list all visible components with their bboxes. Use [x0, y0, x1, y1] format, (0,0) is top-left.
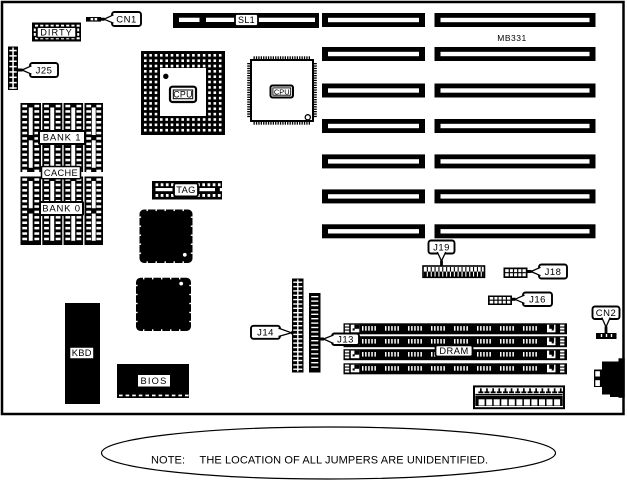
svg-text:NOTE:: NOTE:	[151, 454, 185, 466]
svg-text:KBD: KBD	[72, 348, 92, 358]
svg-text:BIOS: BIOS	[140, 376, 167, 386]
svg-text:J25: J25	[36, 65, 53, 76]
svg-text:DRAM: DRAM	[439, 346, 468, 356]
svg-text:THE LOCATION OF ALL JUMPERS AR: THE LOCATION OF ALL JUMPERS ARE UNIDENTI…	[200, 454, 489, 466]
svg-text:J14: J14	[257, 328, 274, 339]
svg-text:CPU: CPU	[173, 89, 192, 99]
svg-text:DIRTY: DIRTY	[40, 28, 72, 38]
svg-text:CN2: CN2	[596, 308, 617, 319]
svg-text:MB331: MB331	[497, 33, 526, 43]
svg-text:J16: J16	[529, 295, 546, 306]
svg-text:CACHE: CACHE	[44, 168, 78, 178]
svg-text:J18: J18	[545, 267, 562, 278]
svg-text:BANK 1: BANK 1	[43, 133, 82, 144]
svg-text:SL1: SL1	[238, 15, 255, 25]
svg-text:CN1: CN1	[116, 14, 137, 25]
svg-text:J13: J13	[337, 335, 354, 346]
svg-text:CPU: CPU	[274, 88, 290, 97]
svg-text:TAG: TAG	[176, 185, 196, 195]
svg-text:J19: J19	[433, 242, 450, 253]
svg-text:BANK 0: BANK 0	[42, 204, 81, 215]
